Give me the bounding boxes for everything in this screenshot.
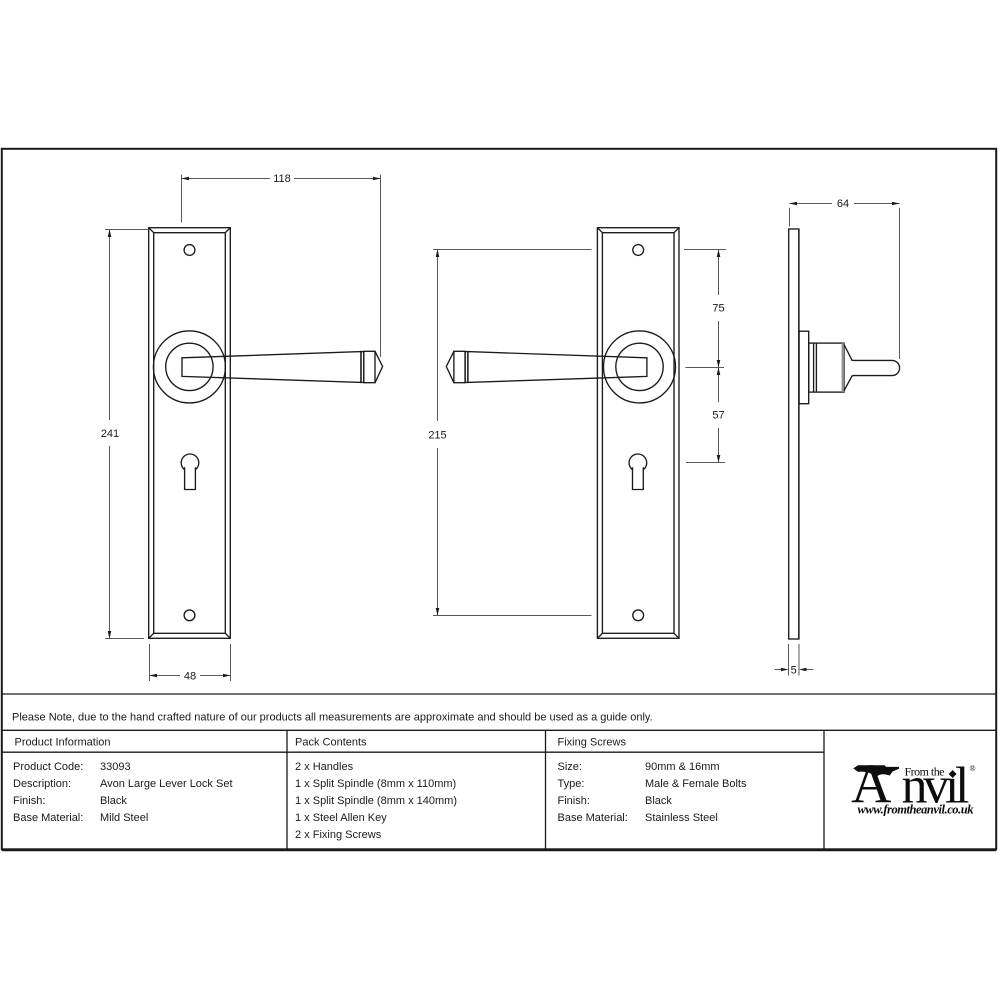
svg-text:Avon Large Lever Lock Set: Avon Large Lever Lock Set — [100, 778, 233, 790]
svg-text:1 x Split Spindle (8mm x 140mm: 1 x Split Spindle (8mm x 140mm) — [295, 795, 457, 807]
svg-text:Type:: Type: — [558, 778, 585, 790]
svg-text:215: 215 — [428, 430, 446, 442]
svg-text:57: 57 — [712, 410, 724, 422]
svg-text:Stainless Steel: Stainless Steel — [645, 812, 718, 824]
svg-text:®: ® — [970, 764, 976, 773]
svg-text:Base Material:: Base Material: — [558, 812, 628, 824]
svg-text:2 x Handles: 2 x Handles — [295, 761, 354, 773]
svg-text:Pack Contents: Pack Contents — [295, 737, 367, 749]
svg-text:Black: Black — [645, 795, 672, 807]
svg-text:Product Code:: Product Code: — [13, 761, 83, 773]
svg-text:5: 5 — [791, 664, 797, 676]
svg-text:33093: 33093 — [100, 761, 131, 773]
svg-text:48: 48 — [184, 670, 196, 682]
svg-text:Fixing Screws: Fixing Screws — [558, 737, 627, 749]
svg-text:Finish:: Finish: — [558, 795, 590, 807]
svg-text:2 x Fixing Screws: 2 x Fixing Screws — [295, 829, 382, 841]
svg-text:Mild Steel: Mild Steel — [100, 812, 148, 824]
svg-text:www.fromtheanvil.co.uk: www.fromtheanvil.co.uk — [858, 803, 975, 817]
svg-text:Black: Black — [100, 795, 127, 807]
svg-text:75: 75 — [712, 303, 724, 315]
svg-text:1 x Split Spindle (8mm x 110mm: 1 x Split Spindle (8mm x 110mm) — [295, 778, 456, 790]
svg-text:90mm & 16mm: 90mm & 16mm — [645, 761, 720, 773]
svg-text:1 x Steel Allen Key: 1 x Steel Allen Key — [295, 812, 387, 824]
svg-text:Please Note, due to the hand c: Please Note, due to the hand crafted nat… — [12, 712, 653, 724]
svg-text:Size:: Size: — [558, 761, 582, 773]
svg-text:118: 118 — [273, 173, 291, 185]
svg-text:Base Material:: Base Material: — [13, 812, 83, 824]
svg-text:241: 241 — [101, 428, 119, 440]
svg-text:Male & Female Bolts: Male & Female Bolts — [645, 778, 747, 790]
svg-text:From the: From the — [905, 765, 945, 779]
svg-text:Description:: Description: — [13, 778, 71, 790]
svg-text:Product Information: Product Information — [15, 737, 111, 749]
svg-text:Finish:: Finish: — [13, 795, 45, 807]
svg-text:64: 64 — [837, 198, 849, 210]
